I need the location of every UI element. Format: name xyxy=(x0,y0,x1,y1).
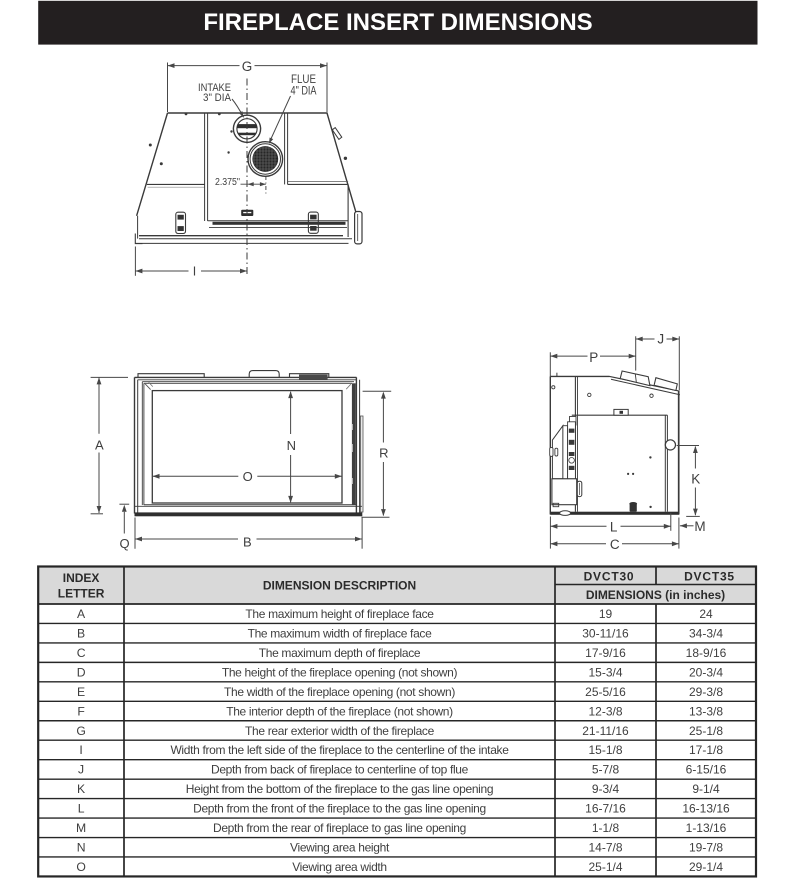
svg-text:N: N xyxy=(77,841,86,855)
svg-text:K: K xyxy=(691,471,700,486)
svg-text:29-3/8: 29-3/8 xyxy=(689,685,723,699)
svg-text:Height from the bottom of the: Height from the bottom of the fireplace … xyxy=(186,782,493,796)
svg-text:17-9/16: 17-9/16 xyxy=(585,646,626,660)
svg-text:B: B xyxy=(243,534,252,549)
svg-text:29-1/4: 29-1/4 xyxy=(689,860,723,874)
svg-text:The width of the fireplace ope: The width of the fireplace opening (not … xyxy=(224,685,455,699)
svg-text:A: A xyxy=(95,438,104,453)
svg-text:B: B xyxy=(77,626,85,640)
svg-text:The maximum height of fireplac: The maximum height of fireplace face xyxy=(245,607,434,621)
svg-text:N: N xyxy=(287,438,296,453)
svg-text:Q: Q xyxy=(119,536,129,551)
svg-text:3" DIA: 3" DIA xyxy=(203,92,232,104)
svg-text:FLUE: FLUE xyxy=(291,74,316,86)
svg-text:J: J xyxy=(78,763,84,777)
svg-text:The maximum depth of fireplace: The maximum depth of fireplace xyxy=(259,646,421,660)
svg-text:I: I xyxy=(193,265,196,279)
svg-text:K: K xyxy=(77,782,85,796)
svg-text:M: M xyxy=(76,821,86,835)
svg-text:FIREPLACE INSERT DIMENSIONS: FIREPLACE INSERT DIMENSIONS xyxy=(203,9,592,36)
svg-text:R: R xyxy=(379,445,388,460)
svg-text:4" DIA: 4" DIA xyxy=(291,86,317,98)
svg-text:Viewing area width: Viewing area width xyxy=(292,860,387,874)
svg-text:20-3/4: 20-3/4 xyxy=(689,665,723,679)
svg-text:E: E xyxy=(77,685,85,699)
svg-text:I: I xyxy=(79,743,82,757)
svg-text:O: O xyxy=(243,469,253,484)
svg-text:The maximum width of fireplace: The maximum width of fireplace face xyxy=(248,626,433,640)
svg-text:D: D xyxy=(77,665,86,679)
svg-text:17-1/8: 17-1/8 xyxy=(689,743,723,757)
svg-text:5-7/8: 5-7/8 xyxy=(592,763,620,777)
svg-text:M: M xyxy=(694,519,705,534)
svg-text:DVCT30: DVCT30 xyxy=(584,569,635,583)
svg-text:The rear exterior width of the: The rear exterior width of the fireplace xyxy=(245,724,435,738)
svg-text:Viewing area height: Viewing area height xyxy=(290,841,390,855)
svg-text:34-3/4: 34-3/4 xyxy=(689,626,723,640)
svg-text:9-1/4: 9-1/4 xyxy=(692,782,720,796)
svg-text:1-13/16: 1-13/16 xyxy=(686,821,727,835)
svg-text:1-1/8: 1-1/8 xyxy=(592,821,620,835)
svg-text:Depth from the front of the fi: Depth from the front of the fireplace to… xyxy=(193,802,486,816)
svg-text:15-1/8: 15-1/8 xyxy=(588,743,622,757)
svg-text:DIMENSION DESCRIPTION: DIMENSION DESCRIPTION xyxy=(263,579,416,593)
svg-text:G: G xyxy=(242,59,253,74)
svg-text:19-7/8: 19-7/8 xyxy=(689,841,723,855)
svg-text:Depth from back of fireplace t: Depth from back of fireplace to centerli… xyxy=(211,763,469,777)
svg-text:P: P xyxy=(589,350,598,365)
svg-text:13-3/8: 13-3/8 xyxy=(689,704,723,718)
svg-text:Width from the left side of th: Width from the left side of the fireplac… xyxy=(170,743,509,757)
svg-text:G: G xyxy=(76,724,85,738)
svg-text:25-1/8: 25-1/8 xyxy=(689,724,723,738)
svg-text:The height of the fireplace op: The height of the fireplace opening (not… xyxy=(222,665,458,679)
svg-text:L: L xyxy=(610,520,618,535)
svg-text:25-1/4: 25-1/4 xyxy=(588,860,622,874)
svg-text:25-5/16: 25-5/16 xyxy=(585,685,626,699)
svg-text:6-15/16: 6-15/16 xyxy=(686,763,727,777)
svg-text:15-3/4: 15-3/4 xyxy=(588,665,622,679)
svg-text:A: A xyxy=(77,607,86,621)
svg-text:9-3/4: 9-3/4 xyxy=(592,782,620,796)
svg-text:14-7/8: 14-7/8 xyxy=(588,841,622,855)
svg-text:12-3/8: 12-3/8 xyxy=(588,704,622,718)
svg-text:16-13/16: 16-13/16 xyxy=(682,802,730,816)
svg-text:LETTER: LETTER xyxy=(58,586,105,600)
svg-text:F: F xyxy=(77,704,84,718)
svg-text:L: L xyxy=(78,802,85,816)
svg-text:19: 19 xyxy=(599,607,613,621)
svg-text:O: O xyxy=(76,860,85,874)
svg-text:C: C xyxy=(77,646,86,660)
svg-text:24: 24 xyxy=(699,607,713,621)
svg-text:21-11/16: 21-11/16 xyxy=(582,724,629,738)
svg-text:30-11/16: 30-11/16 xyxy=(582,626,629,640)
svg-text:INDEX: INDEX xyxy=(63,571,100,585)
svg-text:18-9/16: 18-9/16 xyxy=(686,646,727,660)
svg-text:C: C xyxy=(610,537,620,552)
svg-text:DIMENSIONS (in inches): DIMENSIONS (in inches) xyxy=(586,588,725,602)
svg-text:Depth from the rear of firepla: Depth from the rear of fireplace to gas … xyxy=(213,821,466,835)
svg-text:2.375": 2.375" xyxy=(215,177,240,188)
svg-text:J: J xyxy=(657,332,664,347)
svg-text:The interior depth of the fire: The interior depth of the fireplace (not… xyxy=(226,704,453,718)
svg-text:16-7/16: 16-7/16 xyxy=(585,802,626,816)
svg-text:DVCT35: DVCT35 xyxy=(684,569,735,583)
